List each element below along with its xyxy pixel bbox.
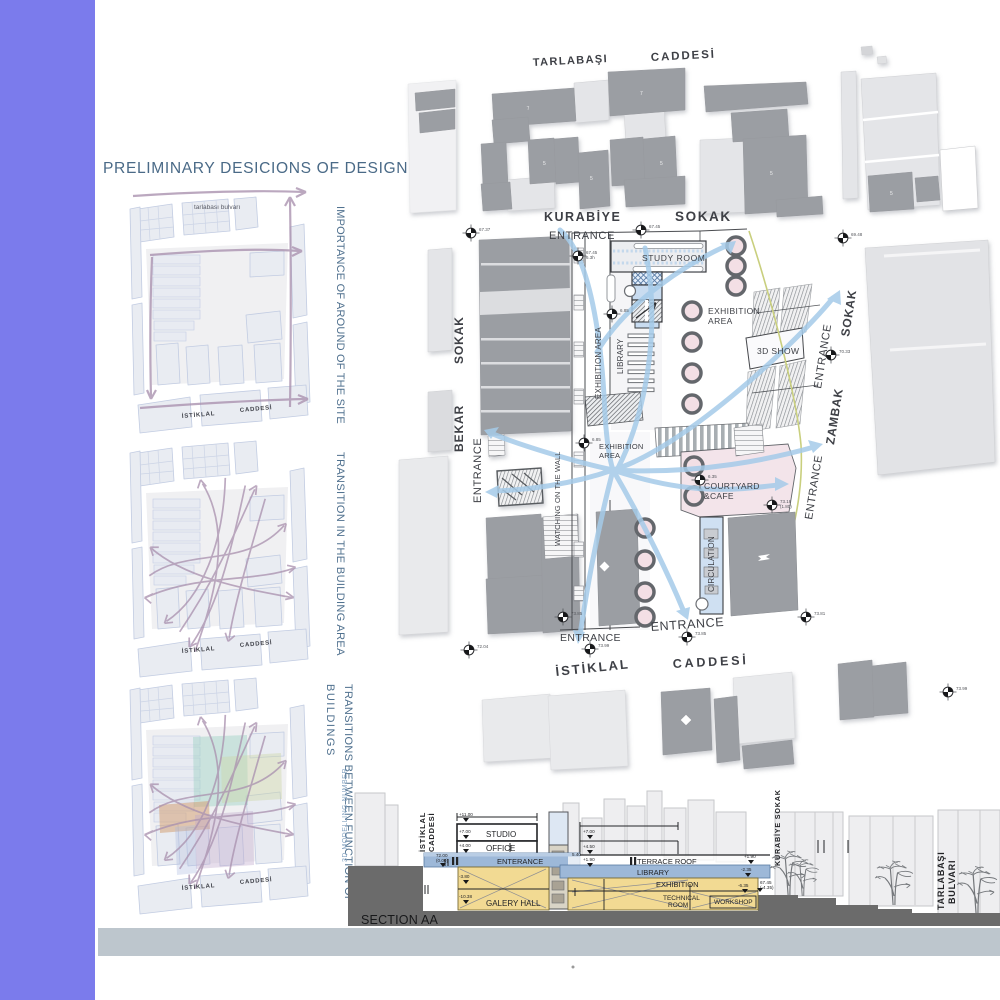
- svg-text:&CAFE: &CAFE: [704, 491, 734, 501]
- svg-text:OFFICE: OFFICE: [486, 844, 515, 853]
- svg-text:SECTION AA: SECTION AA: [361, 913, 438, 927]
- svg-text:EXHIBITION: EXHIBITION: [708, 306, 760, 316]
- svg-text:TECHNICAL: TECHNICAL: [663, 895, 700, 902]
- svg-text:EXHIBITION: EXHIBITION: [599, 442, 644, 451]
- svg-text:AREA: AREA: [599, 451, 620, 460]
- svg-text:tarlabası bulvarı: tarlabası bulvarı: [194, 204, 240, 211]
- svg-text:SOKAK: SOKAK: [675, 209, 732, 224]
- svg-text:6.3h: 6.3h: [586, 255, 595, 260]
- svg-text:STUDY ROOM: STUDY ROOM: [642, 253, 705, 263]
- svg-text:67.37: 67.37: [479, 227, 491, 232]
- svg-text:6.35: 6.35: [708, 474, 717, 479]
- svg-text:ENTRANCE: ENTRANCE: [560, 632, 621, 644]
- svg-text:WATCHING ON THE WALL: WATCHING ON THE WALL: [553, 451, 562, 546]
- svg-text:BUILDINGS: BUILDINGS: [324, 684, 336, 757]
- svg-text:ENTRANCE: ENTRANCE: [472, 438, 484, 503]
- svg-text:(-4.35): (-4.35): [760, 885, 774, 890]
- svg-text:ZAMBAK: ZAMBAK: [823, 387, 846, 445]
- svg-text:PRELIMINARY DESICIONS OF DESIG: PRELIMINARY DESICIONS OF DESIGN: [103, 160, 408, 177]
- svg-text:7: 7: [640, 91, 643, 97]
- svg-text:TERRACE ROOF: TERRACE ROOF: [637, 857, 697, 866]
- svg-text:WORKSHOP: WORKSHOP: [714, 899, 753, 906]
- svg-text:GALERY HALL: GALERY HALL: [486, 899, 541, 908]
- svg-text:BEKAR: BEKAR: [452, 405, 466, 452]
- svg-text:LIBRARY: LIBRARY: [637, 868, 669, 877]
- svg-text:COURTYARD: COURTYARD: [704, 481, 760, 491]
- svg-text:5: 5: [770, 171, 773, 177]
- svg-text:KURABİYE SOKAK: KURABİYE SOKAK: [773, 789, 782, 866]
- svg-text:ENTRANCE: ENTRANCE: [650, 615, 724, 634]
- svg-text:69.48: 69.48: [851, 232, 863, 237]
- svg-text:İSTİKLAL: İSTİKLAL: [555, 656, 631, 679]
- svg-text:-2.35: -2.35: [741, 867, 752, 872]
- svg-text:CADDESİ: CADDESİ: [650, 48, 716, 64]
- svg-text:5: 5: [543, 161, 546, 167]
- svg-text:CIRCULATION: CIRCULATION: [707, 536, 716, 592]
- svg-text:5: 5: [590, 176, 593, 182]
- svg-text:5.40: 5.40: [572, 852, 581, 857]
- svg-text:5: 5: [660, 161, 663, 167]
- svg-text:EXHIBITION: EXHIBITION: [656, 880, 699, 889]
- svg-text:TRANSITION IN THE BUILDING ARE: TRANSITION IN THE BUILDING AREA: [334, 452, 346, 656]
- svg-text:73.85: 73.85: [695, 631, 707, 636]
- svg-text:İSTİKLAL: İSTİKLAL: [418, 812, 427, 852]
- svg-text:CADDESİ: CADDESİ: [672, 652, 749, 671]
- svg-text:+1.90: +1.90: [744, 854, 756, 859]
- svg-text:3D MODELLING NUMBER: 3D MODELLING NUMBER: [342, 768, 349, 862]
- svg-text:AREA: AREA: [708, 316, 733, 326]
- svg-text:TARLABAŞI: TARLABAŞI: [533, 53, 609, 69]
- svg-text:KURABİYE: KURABİYE: [544, 209, 621, 224]
- svg-text:BULVARI: BULVARI: [947, 860, 957, 904]
- svg-text:SOKAK: SOKAK: [452, 316, 466, 364]
- svg-text:STUDIO: STUDIO: [486, 830, 516, 839]
- svg-text:(1.80): (1.80): [780, 504, 792, 509]
- svg-text:-3.80: -3.80: [459, 874, 470, 879]
- svg-text:EXHIBITION AREA: EXHIBITION AREA: [594, 327, 603, 399]
- svg-text:(0.00): (0.00): [436, 858, 448, 863]
- svg-text:73.99: 73.99: [598, 643, 610, 648]
- svg-text:IMPORTANCE OF AROUND OF THE SI: IMPORTANCE OF AROUND OF THE SITE: [334, 206, 346, 424]
- svg-text:+1.90: +1.90: [583, 857, 595, 862]
- svg-text:6.85: 6.85: [592, 437, 601, 442]
- svg-text:+11.00: +11.00: [459, 812, 473, 817]
- svg-text:ROOM: ROOM: [668, 902, 688, 909]
- svg-text:-6.35: -6.35: [738, 883, 749, 888]
- svg-text:+4.50: +4.50: [583, 844, 595, 849]
- svg-text:CADDESİ: CADDESİ: [427, 813, 436, 852]
- svg-text:TARLABAŞI: TARLABAŞI: [936, 851, 946, 910]
- svg-text:73.99: 73.99: [956, 686, 968, 691]
- svg-text:67.45: 67.45: [649, 224, 661, 229]
- svg-text:70.33: 70.33: [839, 349, 851, 354]
- svg-text:3D SHOW: 3D SHOW: [757, 346, 799, 356]
- svg-text:ENTERANCE: ENTERANCE: [497, 857, 543, 866]
- svg-text:SOKAK: SOKAK: [838, 289, 859, 338]
- svg-text:+7.00: +7.00: [583, 829, 595, 834]
- svg-text:+4.00: +4.00: [459, 843, 471, 848]
- svg-text:73.81: 73.81: [814, 611, 826, 616]
- svg-text:5: 5: [890, 191, 893, 197]
- svg-text:73.85: 73.85: [571, 611, 583, 616]
- svg-text:ENTRANCE: ENTRANCE: [549, 230, 615, 242]
- svg-text:72.04: 72.04: [477, 644, 489, 649]
- svg-text:ENTRANCE: ENTRANCE: [803, 454, 825, 520]
- svg-text:6.85: 6.85: [620, 308, 629, 313]
- svg-text:LIBRARY: LIBRARY: [616, 338, 625, 374]
- svg-text:+7.00: +7.00: [459, 829, 471, 834]
- svg-text:-10.38: -10.38: [459, 894, 472, 899]
